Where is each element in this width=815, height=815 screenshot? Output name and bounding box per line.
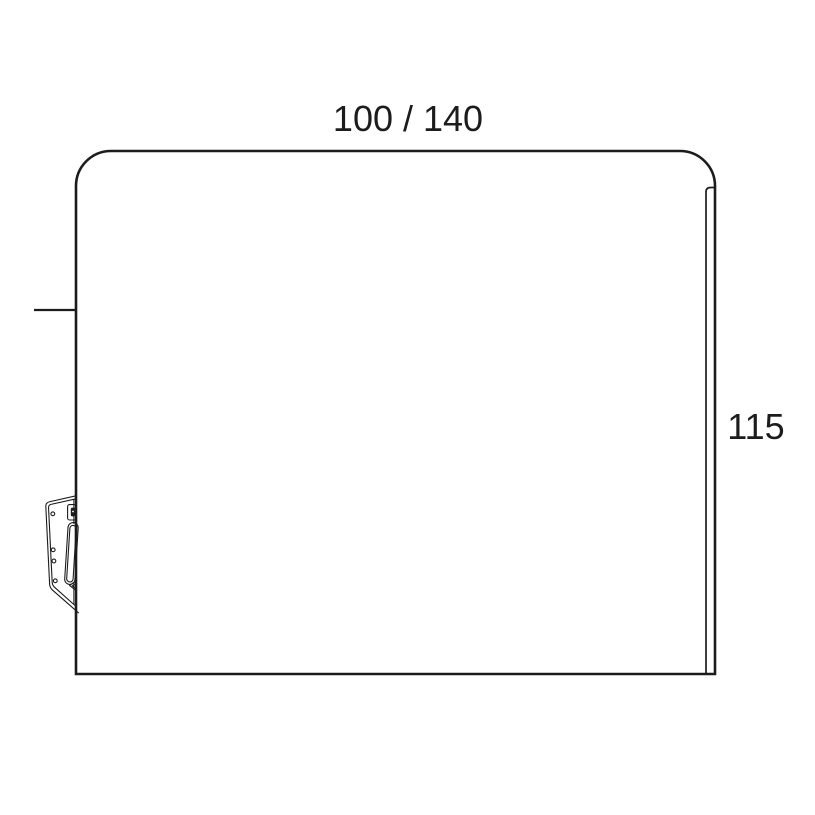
bracket-hole-2 <box>51 548 55 552</box>
bracket-clip-pin <box>72 511 74 513</box>
technical-drawing-canvas: 100 / 140 115 <box>0 0 815 815</box>
panel-outline <box>76 151 715 674</box>
height-dimension-label: 115 <box>727 409 784 445</box>
width-dimension-label: 100 / 140 <box>333 101 483 137</box>
bracket-hole-3 <box>52 559 56 563</box>
mounting-bracket <box>46 496 79 613</box>
bracket-hole-1 <box>51 512 55 516</box>
bracket-hole-4 <box>53 579 57 583</box>
